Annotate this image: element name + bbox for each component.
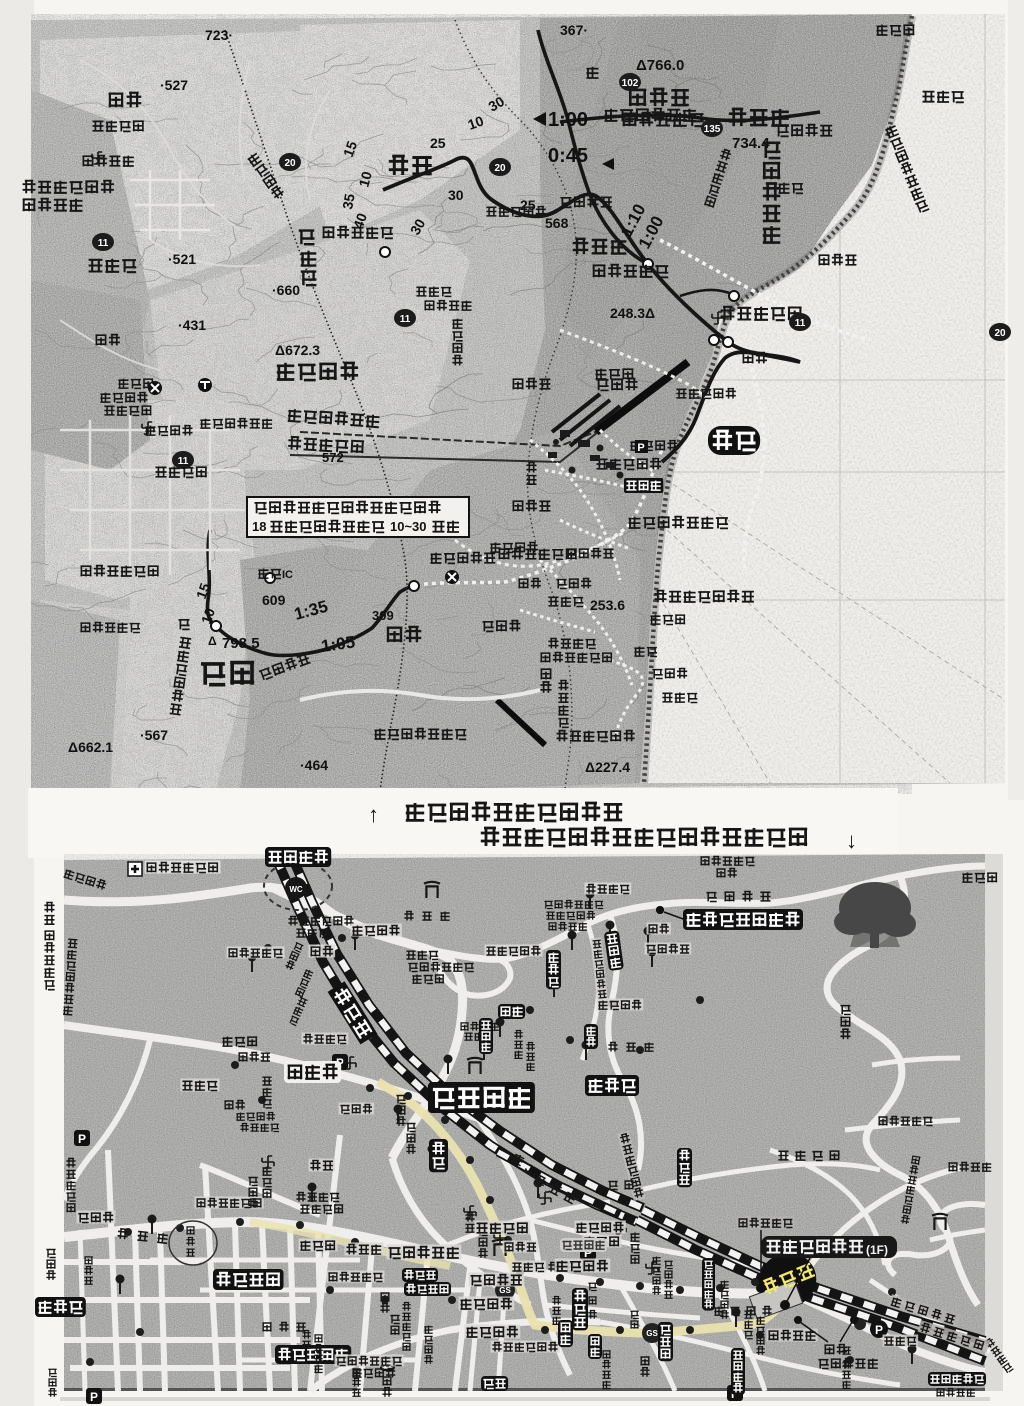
svg-text:·431: ·431 xyxy=(178,317,206,333)
svg-text:798.5: 798.5 xyxy=(222,635,260,652)
svg-text:IC: IC xyxy=(282,569,293,581)
svg-text:·567: ·567 xyxy=(140,727,168,743)
svg-text:568: 568 xyxy=(545,215,569,231)
svg-text:35: 35 xyxy=(339,192,357,210)
svg-text:135: 135 xyxy=(704,124,721,135)
svg-text:P: P xyxy=(875,1323,883,1337)
svg-text:253.6: 253.6 xyxy=(590,597,625,613)
svg-text:·521: ·521 xyxy=(168,251,196,267)
svg-text:P: P xyxy=(90,1390,98,1404)
svg-text:Δ766.0: Δ766.0 xyxy=(636,57,684,74)
svg-text:GS: GS xyxy=(499,1286,511,1295)
svg-text:248.3Δ: 248.3Δ xyxy=(610,305,655,321)
svg-text:1:00: 1:00 xyxy=(548,109,588,131)
svg-text:·464: ·464 xyxy=(300,757,328,773)
svg-text:·660: ·660 xyxy=(272,282,300,298)
svg-text:20: 20 xyxy=(494,163,506,174)
svg-text:10~30: 10~30 xyxy=(390,519,427,534)
svg-text:WC: WC xyxy=(289,885,303,894)
svg-text:P: P xyxy=(637,442,644,454)
svg-text:0:45: 0:45 xyxy=(548,145,588,167)
svg-text:25: 25 xyxy=(430,135,446,151)
svg-text:18: 18 xyxy=(252,519,266,534)
svg-text:↑: ↑ xyxy=(368,802,379,827)
svg-text:367·: 367· xyxy=(560,22,588,38)
svg-text:309: 309 xyxy=(372,608,394,623)
svg-text:11: 11 xyxy=(795,318,806,329)
svg-text:11: 11 xyxy=(98,238,109,249)
svg-text:20: 20 xyxy=(994,328,1006,339)
svg-text:609: 609 xyxy=(262,592,286,608)
svg-text:30: 30 xyxy=(448,187,464,203)
svg-text:102: 102 xyxy=(622,78,639,89)
svg-text:↓: ↓ xyxy=(846,828,857,853)
svg-text:P: P xyxy=(78,1132,86,1146)
svg-text:GS: GS xyxy=(646,1329,658,1338)
svg-text:·527: ·527 xyxy=(160,77,188,93)
svg-text:Δ672.3: Δ672.3 xyxy=(275,342,320,358)
svg-text:11: 11 xyxy=(400,314,411,325)
svg-text:Δ662.1: Δ662.1 xyxy=(68,739,113,755)
svg-text:20: 20 xyxy=(284,158,296,169)
svg-text:Δ227.4: Δ227.4 xyxy=(585,759,630,775)
svg-text:572: 572 xyxy=(322,450,344,465)
svg-text:Δ: Δ xyxy=(208,634,217,648)
svg-text:11: 11 xyxy=(178,456,189,467)
svg-text:723·: 723· xyxy=(205,27,233,43)
svg-text:(1F): (1F) xyxy=(866,1243,888,1257)
